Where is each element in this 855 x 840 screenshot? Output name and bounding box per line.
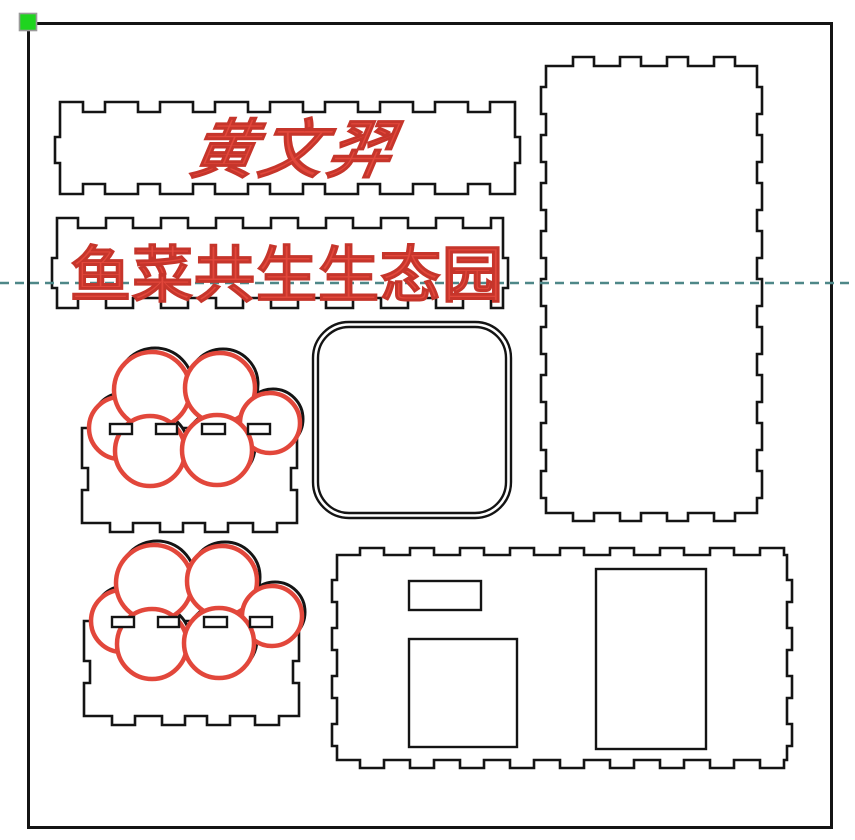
title-plate-text[interactable]: 鱼菜共生生态园 [70,242,504,310]
name-plate-text[interactable]: 黄文羿 [186,115,406,185]
base-panel[interactable] [332,548,792,768]
laser-layout-svg: 黄文羿 鱼菜共生生态园 [0,0,855,840]
origin-handle[interactable] [20,14,37,31]
rounded-square-outer [313,322,511,518]
cloud-sign-assembly-2[interactable] [84,541,305,725]
side-panel-right[interactable] [541,57,762,521]
cutout-tall-rect[interactable] [596,569,706,749]
cutout-square[interactable] [409,639,517,747]
cutout-small-rect[interactable] [409,581,481,610]
design-canvas: 黄文羿 鱼菜共生生态园 [0,0,855,840]
rounded-square-inner [318,327,506,513]
rounded-square-panel[interactable] [313,322,511,518]
base-panel-group[interactable] [332,548,792,768]
cloud-sign-assembly-1[interactable] [82,348,303,532]
